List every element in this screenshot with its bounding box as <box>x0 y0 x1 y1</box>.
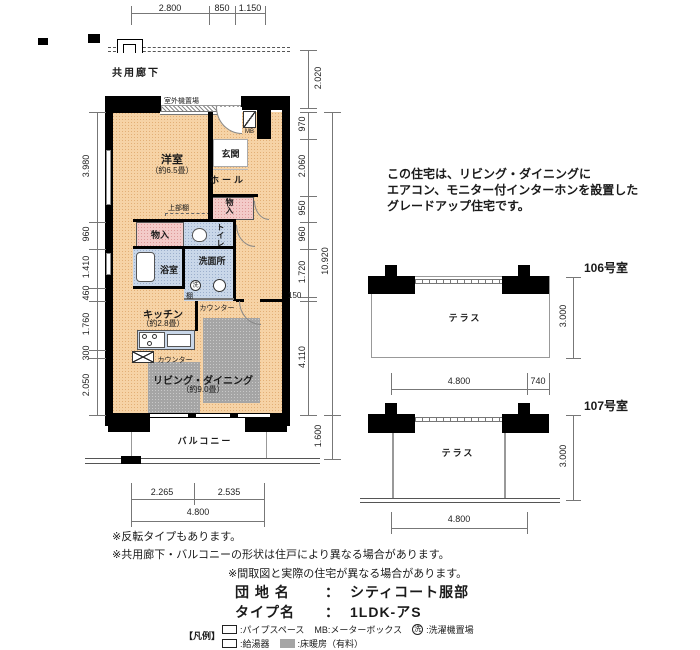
dim-tick <box>566 277 581 278</box>
kitchen-size-label: （約2.8畳） <box>136 318 190 329</box>
dim-terrace-106-offset: 740 <box>520 376 556 386</box>
dim-line <box>573 277 574 358</box>
pipe-space-icon <box>132 351 154 363</box>
wall-bedroom-hall <box>208 112 213 222</box>
terrace-107-label: テラス <box>433 446 483 459</box>
shelf-label: 棚 <box>186 291 193 301</box>
description-line-3: グレードアップ住宅です。 <box>387 197 530 214</box>
burner-icon <box>147 341 152 346</box>
dim-terrace-106-width: 4.800 <box>434 376 484 386</box>
laundry-legend-icon: 洗 <box>412 624 423 635</box>
legend-water-heater: :給湯器 <box>240 637 270 650</box>
dim-line <box>308 50 309 108</box>
corridor-notch-inner <box>123 44 136 53</box>
dim-tick <box>566 358 581 359</box>
legend-block: :パイプスペース MB:メーターボックス 洗:洗濯機置場 :給湯器 :床暖房（有… <box>222 622 474 650</box>
dim-tick <box>300 50 317 51</box>
dim-tick <box>89 249 106 250</box>
estate-name-separator: ： <box>325 584 340 600</box>
balcony-wall-right <box>245 418 287 432</box>
upper-shelf-label: 上部棚 <box>168 203 189 213</box>
dim-top-3: 1.150 <box>225 3 275 13</box>
terrace-106-railing <box>415 279 502 284</box>
dim-line <box>97 112 98 415</box>
legend-floor-heating: :床暖房（有料） <box>298 637 364 650</box>
washroom-label: 洗面所 <box>187 254 237 267</box>
corridor-stub-mark <box>88 34 100 43</box>
legend-mb: MB:メーターボックス <box>314 623 402 636</box>
dim-tick <box>194 483 195 505</box>
dim-left-7: 2.050 <box>81 365 91 405</box>
legend-row-2: :給湯器 :床暖房（有料） <box>222 636 474 650</box>
wall-entry-stem <box>257 110 271 139</box>
estate-type-value: 1LDK-アS <box>350 604 422 620</box>
window-balcony-2 <box>196 414 230 417</box>
dim-line <box>332 112 333 459</box>
counter-top-label: カウンター <box>195 303 239 313</box>
counter-kitchen-label: カウンター <box>153 355 197 365</box>
burner-icon <box>152 334 157 339</box>
dim-top-right: 2.020 <box>313 58 323 98</box>
hall-label: ホール <box>203 173 253 186</box>
dim-bottom-1: 2.265 <box>137 487 187 497</box>
dim-tick <box>89 350 106 351</box>
dim-tick <box>89 415 106 416</box>
estate-type-separator: ： <box>325 604 340 620</box>
wall-closet-hall-top <box>208 194 258 197</box>
dim-tick <box>324 415 341 416</box>
dim-tick <box>264 483 265 505</box>
terrace-106-label: テラス <box>440 311 490 324</box>
dim-top-1: 2.800 <box>145 3 195 13</box>
room-number-106: 106号室 <box>584 259 628 276</box>
window-left-1 <box>106 150 111 205</box>
balcony-label: バルコニー <box>170 434 240 447</box>
top-dim-line <box>131 13 265 14</box>
balcony-rail-left <box>131 432 132 458</box>
wall-bedroom-bottom <box>133 219 236 222</box>
note-1: ※反転タイプもあります。 <box>112 528 241 544</box>
dim-line <box>573 415 574 500</box>
dim-right-total: 10.920 <box>320 239 330 283</box>
terrace-107-wall-left <box>368 414 415 433</box>
entrance-label: 玄関 <box>214 147 247 160</box>
dim-tick <box>89 358 106 359</box>
washer-mark: 洗 <box>192 283 198 289</box>
dim-line <box>131 499 265 500</box>
terrace-107-wall-right <box>502 414 549 433</box>
dim-tick <box>89 288 106 289</box>
dim-bottom-2: 2.535 <box>204 487 254 497</box>
dim-tick <box>391 512 392 534</box>
mb-box-icon <box>243 111 256 128</box>
dim-tick <box>324 459 341 460</box>
balcony-wall-left <box>108 418 150 432</box>
corridor-label: 共用廊下 <box>112 64 160 79</box>
note-3: ※間取図と実際の住宅が異なる場合があります。 <box>228 565 467 581</box>
dim-tick <box>566 415 581 416</box>
terrace-106-wall-right <box>502 276 549 294</box>
water-heater-legend-icon <box>222 639 237 648</box>
wall-bath-bottom <box>133 286 185 289</box>
legend-pipe-space: :パイプスペース <box>240 623 304 636</box>
description-line-1: この住宅は、リビング・ダイニングに <box>387 165 591 182</box>
burner-icon <box>142 334 147 339</box>
dim-tick <box>89 222 106 223</box>
entrance-step-line <box>213 169 248 170</box>
dim-right-2: 2.060 <box>297 146 307 186</box>
left-closet-label: 物入 <box>137 228 183 241</box>
dim-right-1: 970 <box>297 104 307 144</box>
room-number-107: 107号室 <box>584 397 628 414</box>
dim-left-1: 3.980 <box>81 146 91 186</box>
dim-line <box>308 112 309 415</box>
dim-tick <box>131 483 132 505</box>
dim-tick <box>527 512 528 534</box>
terrace-107-ground-line <box>360 498 560 503</box>
legend-laundry: :洗濯機置場 <box>426 623 474 636</box>
wall-right <box>282 110 290 426</box>
dim-right-6: 150 <box>288 291 301 300</box>
dim-right-5: 1.720 <box>297 252 307 292</box>
dim-tick <box>89 112 106 113</box>
terrace-107-railing <box>415 417 502 422</box>
estate-type-row: タイプ名：1LDK-アS <box>235 602 422 622</box>
dim-line <box>391 528 528 529</box>
dim-tick <box>131 6 132 25</box>
living-size-label: （約9.0畳） <box>168 384 238 395</box>
dim-line <box>131 521 265 522</box>
dim-tick <box>566 500 581 501</box>
washer-icon: 洗 <box>190 280 201 291</box>
dim-tick <box>131 505 132 527</box>
description-line-2: エアコン、モニター付インターホンを設置した <box>387 181 638 198</box>
estate-type-label: タイプ名 <box>235 602 325 622</box>
dim-terrace-106-height: 3.000 <box>558 296 568 336</box>
terrace-106-wall-left <box>368 276 415 294</box>
window-balcony-3 <box>238 414 270 417</box>
dim-tick <box>89 301 106 302</box>
estate-name-label: 団 地 名 <box>235 582 325 602</box>
wall-living-top-2 <box>260 299 282 302</box>
dim-tick <box>300 301 317 302</box>
dim-bottom-total: 4.800 <box>173 507 223 517</box>
corridor-stub-mark <box>38 38 48 45</box>
balcony-rail-right <box>266 432 267 458</box>
dim-terrace-107-height: 3.000 <box>558 436 568 476</box>
note-2: ※共用廊下・バルコニーの形状は住戸により異なる場合があります。 <box>112 546 450 562</box>
boundary-mark <box>121 456 141 464</box>
pipe-space-legend-icon <box>222 625 237 634</box>
basin-icon <box>213 279 226 292</box>
terrace-107-side-left <box>392 433 394 499</box>
legend-title: 【凡例】 <box>184 629 220 642</box>
terrace-107-side-right <box>504 433 506 499</box>
window-balcony-1 <box>150 414 188 417</box>
floor-heating-legend-icon <box>280 639 295 648</box>
dim-tick <box>324 112 341 113</box>
toilet-bowl-icon <box>192 228 207 242</box>
dim-tick <box>264 505 265 527</box>
dim-tick <box>391 373 392 395</box>
dim-right-7: 4.110 <box>297 337 307 377</box>
sink-icon <box>167 334 191 347</box>
bedroom-size-label: （約6.5畳） <box>137 165 207 176</box>
wall-top-left <box>107 96 161 113</box>
wall-top-right <box>241 96 290 110</box>
dim-right-bottom: 1.600 <box>313 416 323 456</box>
floorplan-page: 2.800 850 1.150 共用廊下 2.020 室外機置場 <box>0 0 700 650</box>
legend-row-1: :パイプスペース MB:メーターボックス 洗:洗濯機置場 <box>222 622 474 636</box>
estate-name-row: 団 地 名：シティコート服部 <box>235 582 469 602</box>
hall-closet-label: 物入 <box>224 198 235 220</box>
dim-terrace-107-width: 4.800 <box>434 514 484 524</box>
estate-name-value: シティコート服部 <box>350 584 469 600</box>
mb-label: MB <box>243 129 256 135</box>
bath-label: 浴室 <box>148 263 190 276</box>
toilet-label: トイレ <box>215 223 226 249</box>
dim-tick <box>300 297 317 298</box>
dim-right-4: 960 <box>297 214 307 254</box>
window-left-2 <box>106 253 111 275</box>
